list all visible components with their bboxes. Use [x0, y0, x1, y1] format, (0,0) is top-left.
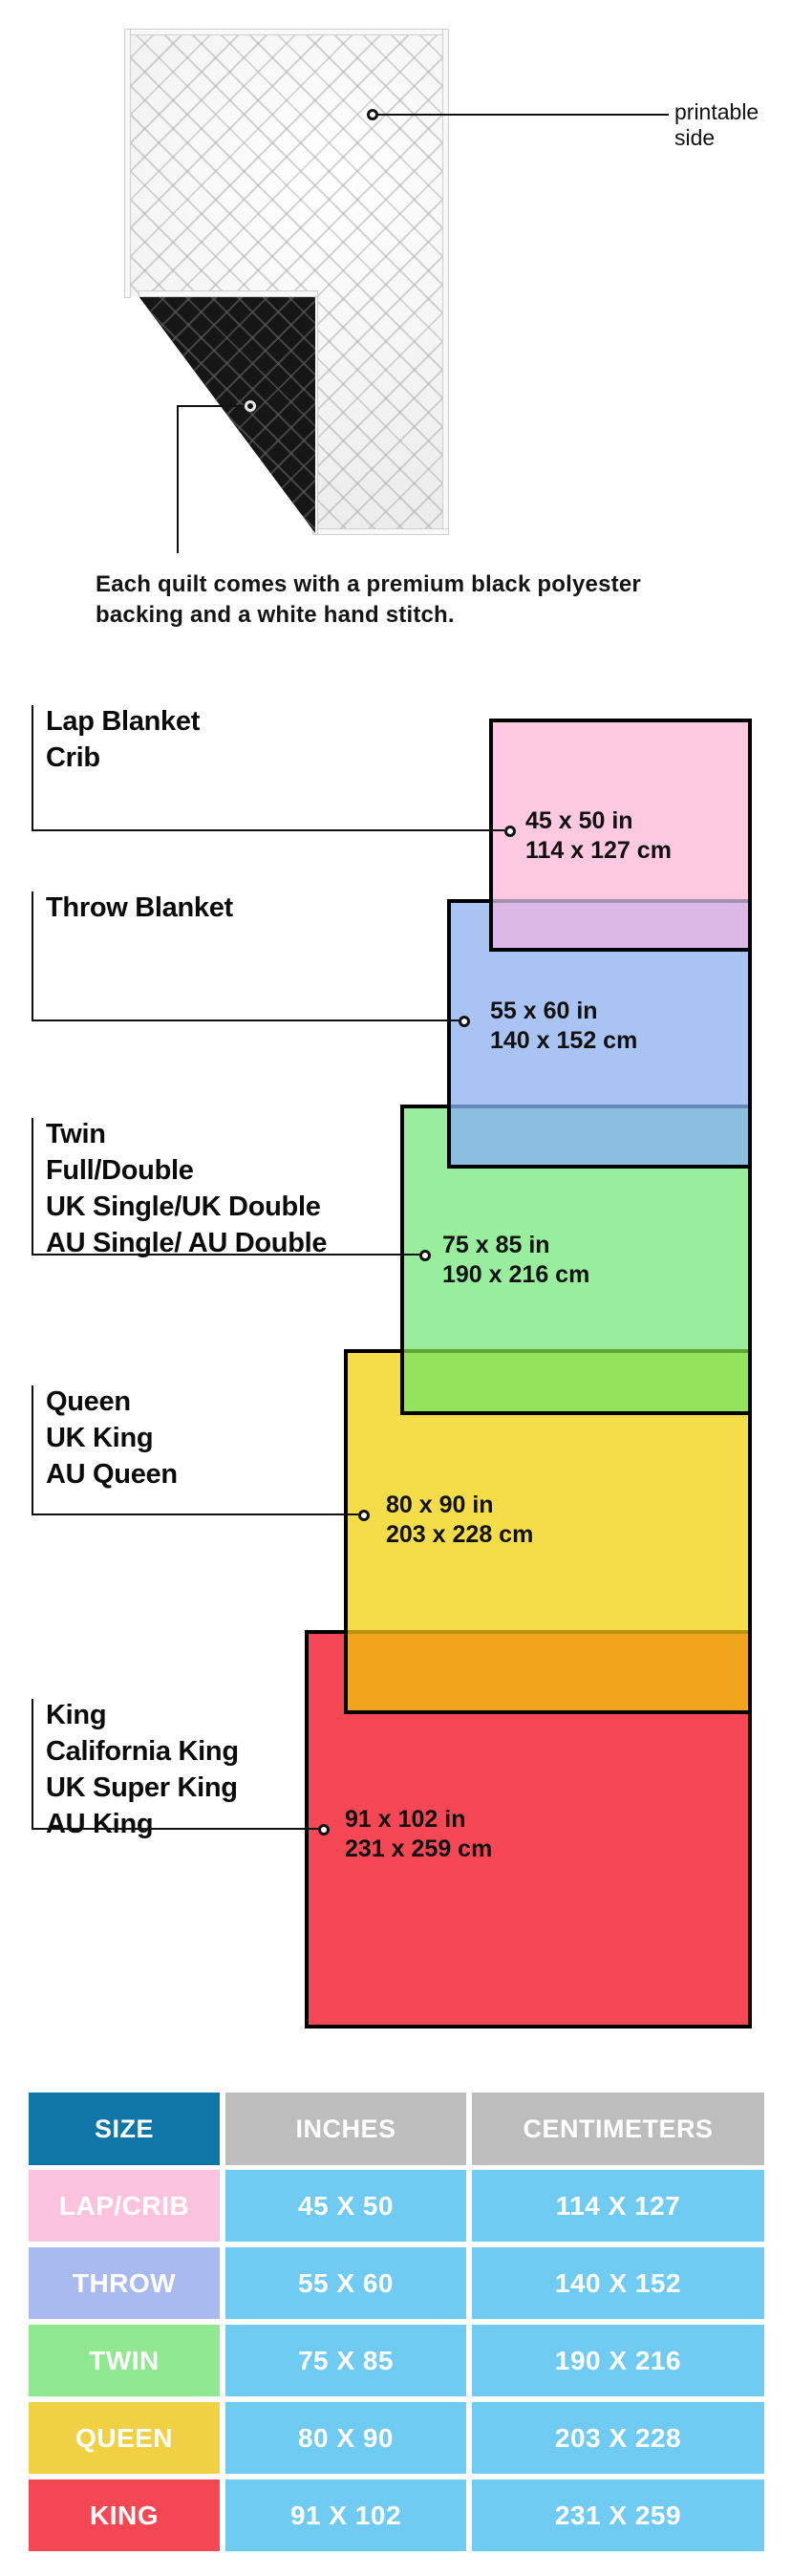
table-header-inches: INCHES	[225, 2093, 466, 2165]
lap-marker-circle	[504, 826, 516, 837]
label-king-line2: California King	[46, 1733, 239, 1770]
king-callout-horizontal	[32, 1828, 318, 1830]
label-twin-line3: UK Single/UK Double	[46, 1189, 327, 1225]
label-king-line3: UK Super King	[46, 1770, 239, 1806]
throw-callout-horizontal	[32, 1020, 459, 1021]
queen-callout-horizontal	[32, 1513, 358, 1515]
table-row-king-inches: 91 X 102	[225, 2479, 466, 2551]
quilt-caption-line1: Each quilt comes with a premium black po…	[96, 569, 641, 600]
table-row-queen-cm: 203 X 228	[472, 2402, 764, 2474]
quilt-binding-bottom	[315, 528, 449, 535]
label-queen-line3: AU Queen	[46, 1456, 178, 1492]
quilt-caption-line2: backing and a white hand stitch.	[96, 600, 455, 631]
king-dimensions-inches: 91 x 102 in	[345, 1805, 492, 1835]
backing-callout-line-horizontal	[177, 405, 246, 407]
label-lap-crib-line1: Lap Blanket	[46, 703, 200, 740]
quilt-black-backing-flap	[139, 296, 315, 533]
throw-dimensions: 55 x 60 in 140 x 152 cm	[490, 997, 637, 1056]
overlap-band-queen-king	[348, 1634, 748, 1710]
label-twin-line2: Full/Double	[46, 1152, 327, 1189]
backing-marker-circle	[245, 400, 256, 412]
table-row-lap-cm: 114 X 127	[472, 2170, 764, 2242]
table-row-queen-inches: 80 X 90	[225, 2402, 466, 2474]
overlap-band-twin-queen	[404, 1353, 748, 1411]
label-twin: Twin Full/Double UK Single/UK Double AU …	[46, 1116, 327, 1261]
size-table: SIZE INCHES CENTIMETERS LAP/CRIB 45 X 50…	[29, 2093, 764, 2551]
table-row-throw-inches: 55 X 60	[225, 2247, 466, 2319]
throw-callout-vertical	[32, 891, 33, 1020]
lap-dimensions: 45 x 50 in 114 x 127 cm	[525, 806, 672, 866]
table-row-king-size: KING	[29, 2479, 220, 2551]
king-marker-circle	[318, 1824, 330, 1835]
table-row-throw-size: THROW	[29, 2247, 220, 2319]
printable-side-marker-circle	[367, 109, 378, 120]
printable-side-callout-line	[378, 114, 669, 116]
quilt-binding-fold-top	[139, 290, 318, 297]
label-lap-crib-line2: Crib	[46, 740, 200, 776]
table-row-king-cm: 231 X 259	[472, 2479, 764, 2551]
twin-callout-horizontal	[32, 1254, 419, 1256]
lap-callout-horizontal	[32, 829, 504, 831]
label-queen-line2: UK King	[46, 1420, 178, 1456]
quilt-binding-left	[124, 29, 131, 298]
queen-dimensions-inches: 80 x 90 in	[386, 1491, 533, 1520]
lap-dimensions-cm: 114 x 127 cm	[525, 836, 672, 866]
queen-marker-circle	[358, 1510, 370, 1521]
printable-side-label: printable side	[674, 99, 770, 151]
label-king-line4: AU King	[46, 1806, 239, 1842]
table-row-lap-size: LAP/CRIB	[29, 2170, 220, 2242]
label-king: King California King UK Super King AU Ki…	[46, 1697, 239, 1842]
throw-dimensions-cm: 140 x 152 cm	[490, 1026, 637, 1056]
queen-dimensions: 80 x 90 in 203 x 228 cm	[386, 1491, 533, 1550]
table-header-size: SIZE	[29, 2093, 220, 2165]
throw-dimensions-inches: 55 x 60 in	[490, 997, 637, 1026]
table-row-throw-cm: 140 X 152	[472, 2247, 764, 2319]
quilt-size-guide: { "fabric": { "printable_label": "printa…	[0, 0, 791, 2576]
lap-dimensions-inches: 45 x 50 in	[525, 806, 672, 836]
twin-marker-circle	[419, 1250, 431, 1261]
table-row-twin-inches: 75 X 85	[225, 2325, 466, 2396]
table-row-lap-inches: 45 X 50	[225, 2170, 466, 2242]
label-throw: Throw Blanket	[46, 890, 233, 926]
quilt-binding-top	[124, 29, 449, 35]
label-king-line1: King	[46, 1697, 239, 1733]
twin-dimensions-cm: 190 x 216 cm	[442, 1260, 589, 1290]
king-callout-vertical	[32, 1699, 33, 1829]
throw-marker-circle	[459, 1016, 470, 1027]
label-queen: Queen UK King AU Queen	[46, 1384, 178, 1492]
table-row-twin-cm: 190 X 216	[472, 2325, 764, 2396]
twin-dimensions-inches: 75 x 85 in	[442, 1231, 589, 1260]
overlap-band-lap-throw	[493, 903, 748, 948]
overlap-band-throw-twin	[451, 1108, 748, 1165]
lap-callout-vertical	[32, 705, 33, 831]
table-row-twin-size: TWIN	[29, 2325, 220, 2396]
twin-dimensions: 75 x 85 in 190 x 216 cm	[442, 1231, 589, 1290]
quilt-binding-right	[442, 29, 449, 535]
queen-dimensions-cm: 203 x 228 cm	[386, 1520, 533, 1550]
queen-callout-vertical	[32, 1385, 33, 1514]
table-row-queen-size: QUEEN	[29, 2402, 220, 2474]
king-dimensions: 91 x 102 in 231 x 259 cm	[345, 1805, 492, 1864]
label-queen-line1: Queen	[46, 1384, 178, 1420]
table-header-centimeters: CENTIMETERS	[472, 2093, 764, 2165]
label-lap-crib: Lap Blanket Crib	[46, 703, 200, 776]
twin-callout-vertical	[32, 1118, 33, 1255]
backing-callout-line-vertical	[177, 405, 179, 553]
label-throw-line1: Throw Blanket	[46, 890, 233, 926]
king-dimensions-cm: 231 x 259 cm	[345, 1835, 492, 1864]
label-twin-line1: Twin	[46, 1116, 327, 1152]
label-twin-line4: AU Single/ AU Double	[46, 1225, 327, 1261]
